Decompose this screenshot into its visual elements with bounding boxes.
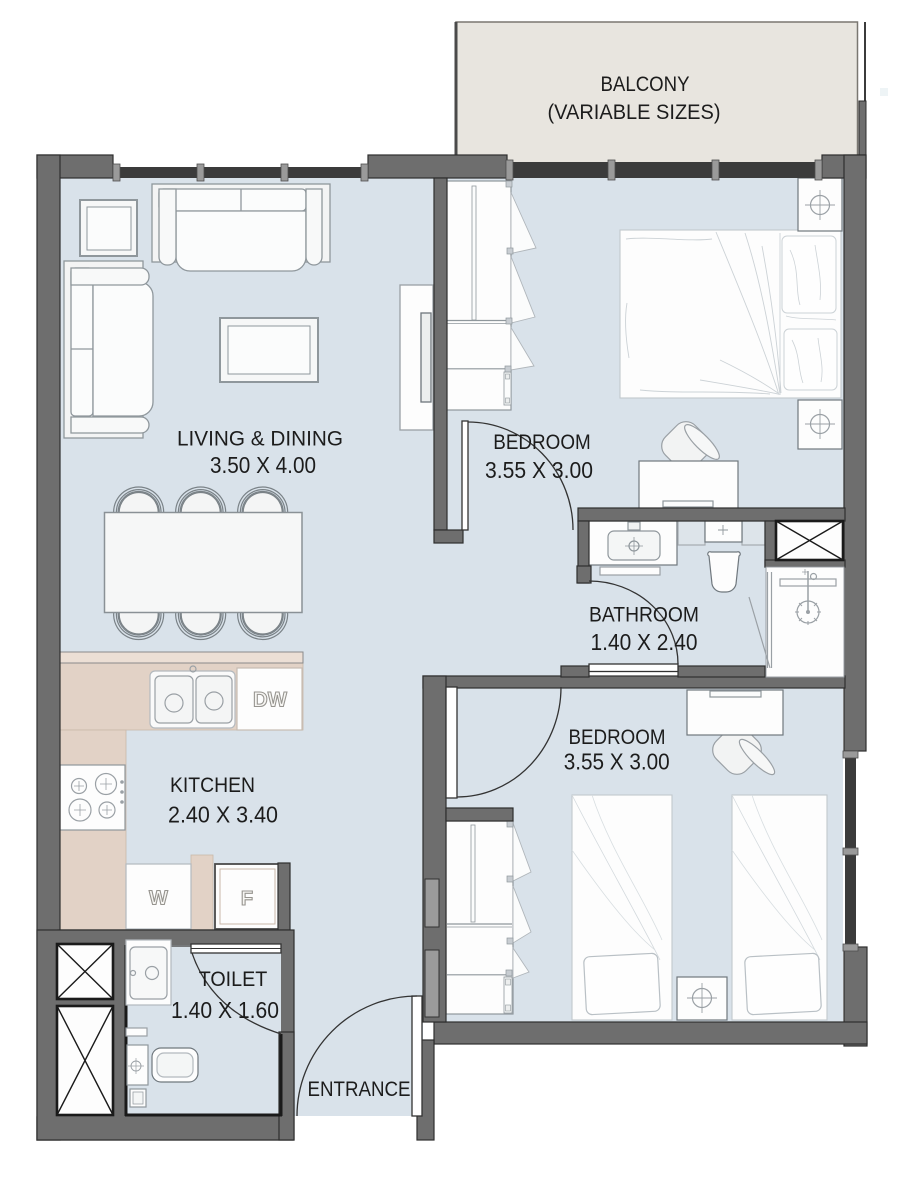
svg-text:2.40 X 3.40: 2.40 X 3.40 (168, 802, 278, 828)
svg-text:W: W (149, 888, 168, 910)
svg-text:1.40 X 1.60: 1.40 X 1.60 (171, 997, 279, 1023)
svg-text:KITCHEN: KITCHEN (170, 773, 255, 797)
svg-text:1.40 X 2.40: 1.40 X 2.40 (591, 629, 698, 655)
svg-text:F: F (241, 888, 253, 910)
svg-text:3.50 X 4.00: 3.50 X 4.00 (210, 452, 316, 478)
svg-text:BEDROOM: BEDROOM (493, 430, 591, 454)
svg-text:BALCONY: BALCONY (601, 72, 690, 96)
svg-text:3.55 X 3.00: 3.55 X 3.00 (564, 749, 670, 775)
svg-text:BEDROOM: BEDROOM (569, 725, 666, 749)
svg-text:(VARIABLE SIZES): (VARIABLE SIZES) (548, 100, 721, 124)
svg-text:3.55 X 3.00: 3.55 X 3.00 (485, 457, 593, 483)
svg-text:BATHROOM: BATHROOM (589, 603, 699, 627)
svg-text:DW: DW (253, 689, 287, 712)
svg-text:ENTRANCE: ENTRANCE (308, 1077, 411, 1101)
svg-text:TOILET: TOILET (199, 967, 268, 991)
svg-text:LIVING & DINING: LIVING & DINING (177, 427, 343, 451)
